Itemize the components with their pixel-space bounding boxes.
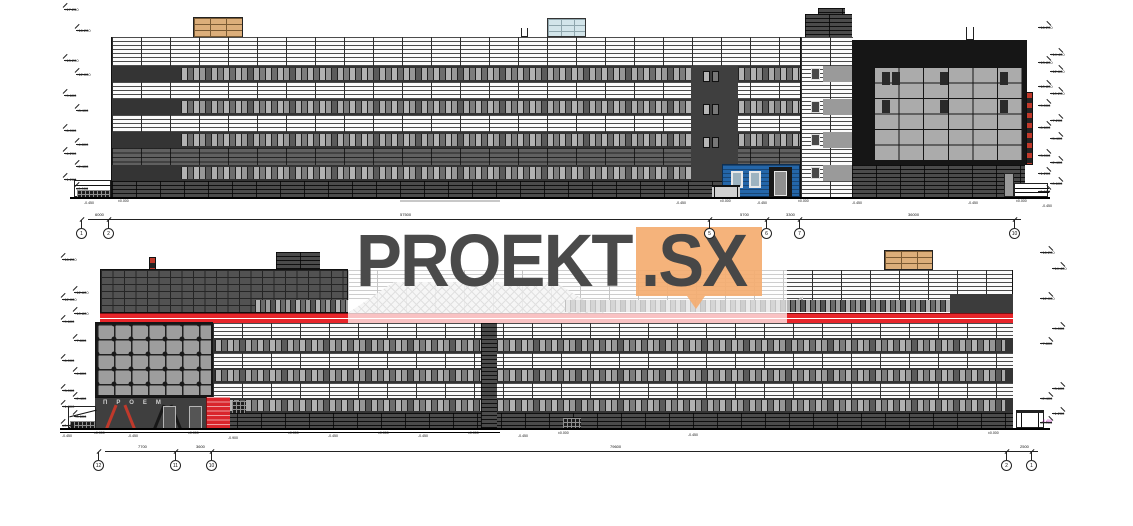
core-window — [712, 71, 719, 82]
core-window — [703, 71, 710, 82]
level-note: ±0.000 — [720, 199, 731, 203]
window-band — [213, 368, 1013, 383]
rooftop-lightblue-unit — [547, 18, 586, 37]
entrance-window — [749, 171, 761, 188]
facade-base-band — [213, 413, 1013, 429]
core-window — [712, 137, 719, 148]
dimension-label: 3300 — [786, 213, 795, 217]
tower-window — [811, 68, 820, 80]
roof-block — [276, 252, 320, 269]
facade-band — [213, 353, 1013, 368]
store-door — [189, 406, 202, 428]
right-canopy — [1016, 410, 1044, 428]
louver-grille — [232, 401, 246, 413]
level-note: ±0.000 — [378, 431, 389, 435]
canopy-post — [1038, 413, 1039, 428]
slit-window — [892, 72, 900, 85]
level-note: -0.450 — [852, 201, 862, 205]
level-note: -0.450 — [676, 201, 686, 205]
window-band — [112, 99, 853, 115]
facade-band — [213, 323, 1013, 338]
level-note: -0.450 — [518, 434, 528, 438]
dimension-label: 6000 — [95, 213, 104, 217]
windows — [181, 167, 691, 179]
facade-band — [213, 383, 1013, 398]
tower-floor — [823, 132, 853, 148]
ground-line — [70, 197, 1050, 199]
tower-floor — [823, 165, 853, 181]
window-band — [112, 132, 853, 148]
facade-band — [112, 148, 853, 165]
level-note: ±0.000 — [1016, 199, 1027, 203]
windows — [215, 370, 1005, 381]
level-note: -0.450 — [84, 201, 94, 205]
curtain-wall — [95, 322, 213, 397]
rooftop-tan-unit — [193, 17, 243, 38]
level-note: -0.450 — [757, 201, 767, 205]
dimension-line — [105, 451, 1038, 452]
core-window — [703, 104, 710, 115]
window-band — [213, 398, 1013, 413]
level-note: ±0.000 — [558, 431, 569, 435]
dimension-label: 79600 — [610, 445, 621, 449]
dimension-label: 7700 — [138, 445, 147, 449]
level-note: ±0.000 — [188, 431, 199, 435]
roof-antenna-icon — [966, 27, 974, 40]
level-note: -0.450 — [688, 433, 698, 437]
dimension-label: 2500 — [1020, 445, 1029, 449]
dark-column-strip — [481, 323, 497, 429]
light-tower — [800, 37, 852, 197]
level-note: -0.450 — [62, 434, 72, 438]
side-door — [1004, 173, 1014, 197]
drawing-sheet: ПРОЕМ PROEKT .SX +17.250+16.200+13.20 — [0, 0, 1133, 526]
level-note: -0.450 — [328, 434, 338, 438]
top-elevation-drawing — [0, 0, 1133, 245]
level-note: -0.450 — [128, 434, 138, 438]
dimension-label: 57500 — [400, 213, 411, 217]
sidewalk — [400, 200, 500, 202]
facade-band — [112, 37, 853, 66]
facade-band — [112, 82, 853, 99]
level-note: ±0.000 — [988, 431, 999, 435]
level-note: -0.450 — [1042, 204, 1052, 208]
entrance-door-frame — [769, 167, 792, 197]
core-window — [703, 137, 710, 148]
tower-floor — [823, 66, 853, 82]
roof-antenna-icon — [521, 28, 528, 37]
facade-ladder — [1026, 92, 1033, 165]
level-note: -0.900 — [228, 436, 238, 440]
stair-base — [77, 190, 110, 197]
red-brace — [123, 405, 137, 428]
red-brace — [103, 405, 117, 428]
level-note: -0.450 — [418, 434, 428, 438]
watermark-suffix: .SX — [641, 224, 746, 298]
watermark-word: PROEKT — [356, 224, 632, 298]
tower-floor — [823, 99, 853, 115]
black-volume — [852, 40, 1027, 165]
slit-window — [1000, 72, 1008, 85]
slit-window — [882, 100, 890, 113]
level-note: ±0.000 — [798, 199, 809, 203]
dimension-label: 3600 — [196, 445, 205, 449]
level-note: ±0.000 — [118, 199, 129, 203]
windows — [738, 101, 801, 113]
windows — [181, 101, 691, 113]
dimension-label: 36000 — [908, 213, 919, 217]
louver-grille — [563, 418, 581, 428]
slit-window — [1000, 100, 1008, 113]
canopy-post — [1021, 413, 1022, 428]
windows — [181, 68, 691, 80]
tower-window — [811, 101, 820, 113]
facade-band — [112, 115, 853, 132]
tower-window — [811, 134, 820, 146]
level-note-magenta: -0.450 — [1042, 419, 1052, 423]
facade-base-band — [852, 165, 1025, 197]
core-window — [712, 104, 719, 115]
tower-window — [811, 167, 820, 179]
ground-line — [60, 428, 1050, 430]
panel-wall — [874, 67, 1022, 160]
entrance-door — [774, 171, 787, 196]
level-note: ±0.000 — [94, 431, 105, 435]
windows — [215, 340, 1005, 351]
storefront: ПРОЕМ — [95, 397, 213, 428]
main-facade — [213, 323, 1013, 429]
level-note: -0.450 — [968, 201, 978, 205]
slit-window-band — [255, 300, 348, 312]
store-door — [163, 406, 176, 428]
windows — [738, 68, 801, 80]
slit-window — [882, 72, 890, 85]
window-band — [112, 66, 853, 82]
dark-panel — [950, 294, 1013, 313]
slit-window — [940, 72, 948, 85]
slit-window — [940, 100, 948, 113]
ground-line-2 — [60, 432, 500, 433]
window-band — [213, 338, 1013, 353]
storefront-signage: ПРОЕМ — [103, 400, 170, 406]
dimension-label: 5700 — [740, 213, 749, 217]
rooftop-tan-unit — [884, 250, 933, 270]
level-note: ±0.000 — [288, 431, 299, 435]
windows — [738, 134, 801, 146]
entrance-canopy — [712, 185, 740, 197]
roller-door — [206, 397, 230, 428]
windows — [181, 134, 691, 146]
level-note: ±0.000 — [468, 431, 479, 435]
windows — [215, 400, 1005, 411]
